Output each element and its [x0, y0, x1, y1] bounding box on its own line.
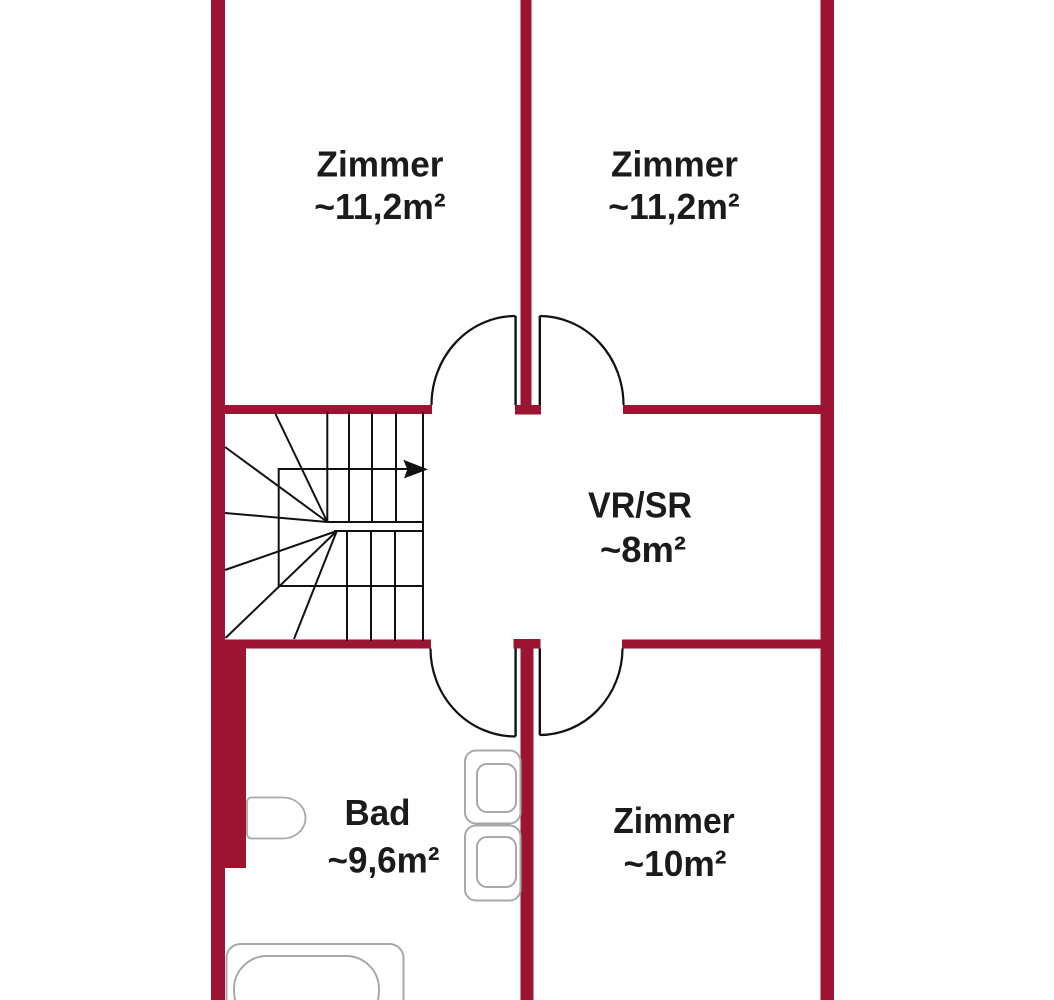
svg-text:~9,6m²: ~9,6m² [328, 840, 440, 881]
svg-text:~11,2m²: ~11,2m² [608, 186, 740, 227]
svg-text:~10m²: ~10m² [624, 843, 727, 884]
svg-text:VR/SR: VR/SR [588, 485, 692, 526]
svg-text:Zimmer: Zimmer [613, 800, 735, 841]
svg-text:~11,2m²: ~11,2m² [314, 186, 446, 227]
svg-text:~8m²: ~8m² [600, 529, 686, 570]
svg-text:Bad: Bad [345, 792, 411, 833]
svg-text:Zimmer: Zimmer [317, 144, 444, 185]
svg-text:Zimmer: Zimmer [611, 144, 738, 185]
